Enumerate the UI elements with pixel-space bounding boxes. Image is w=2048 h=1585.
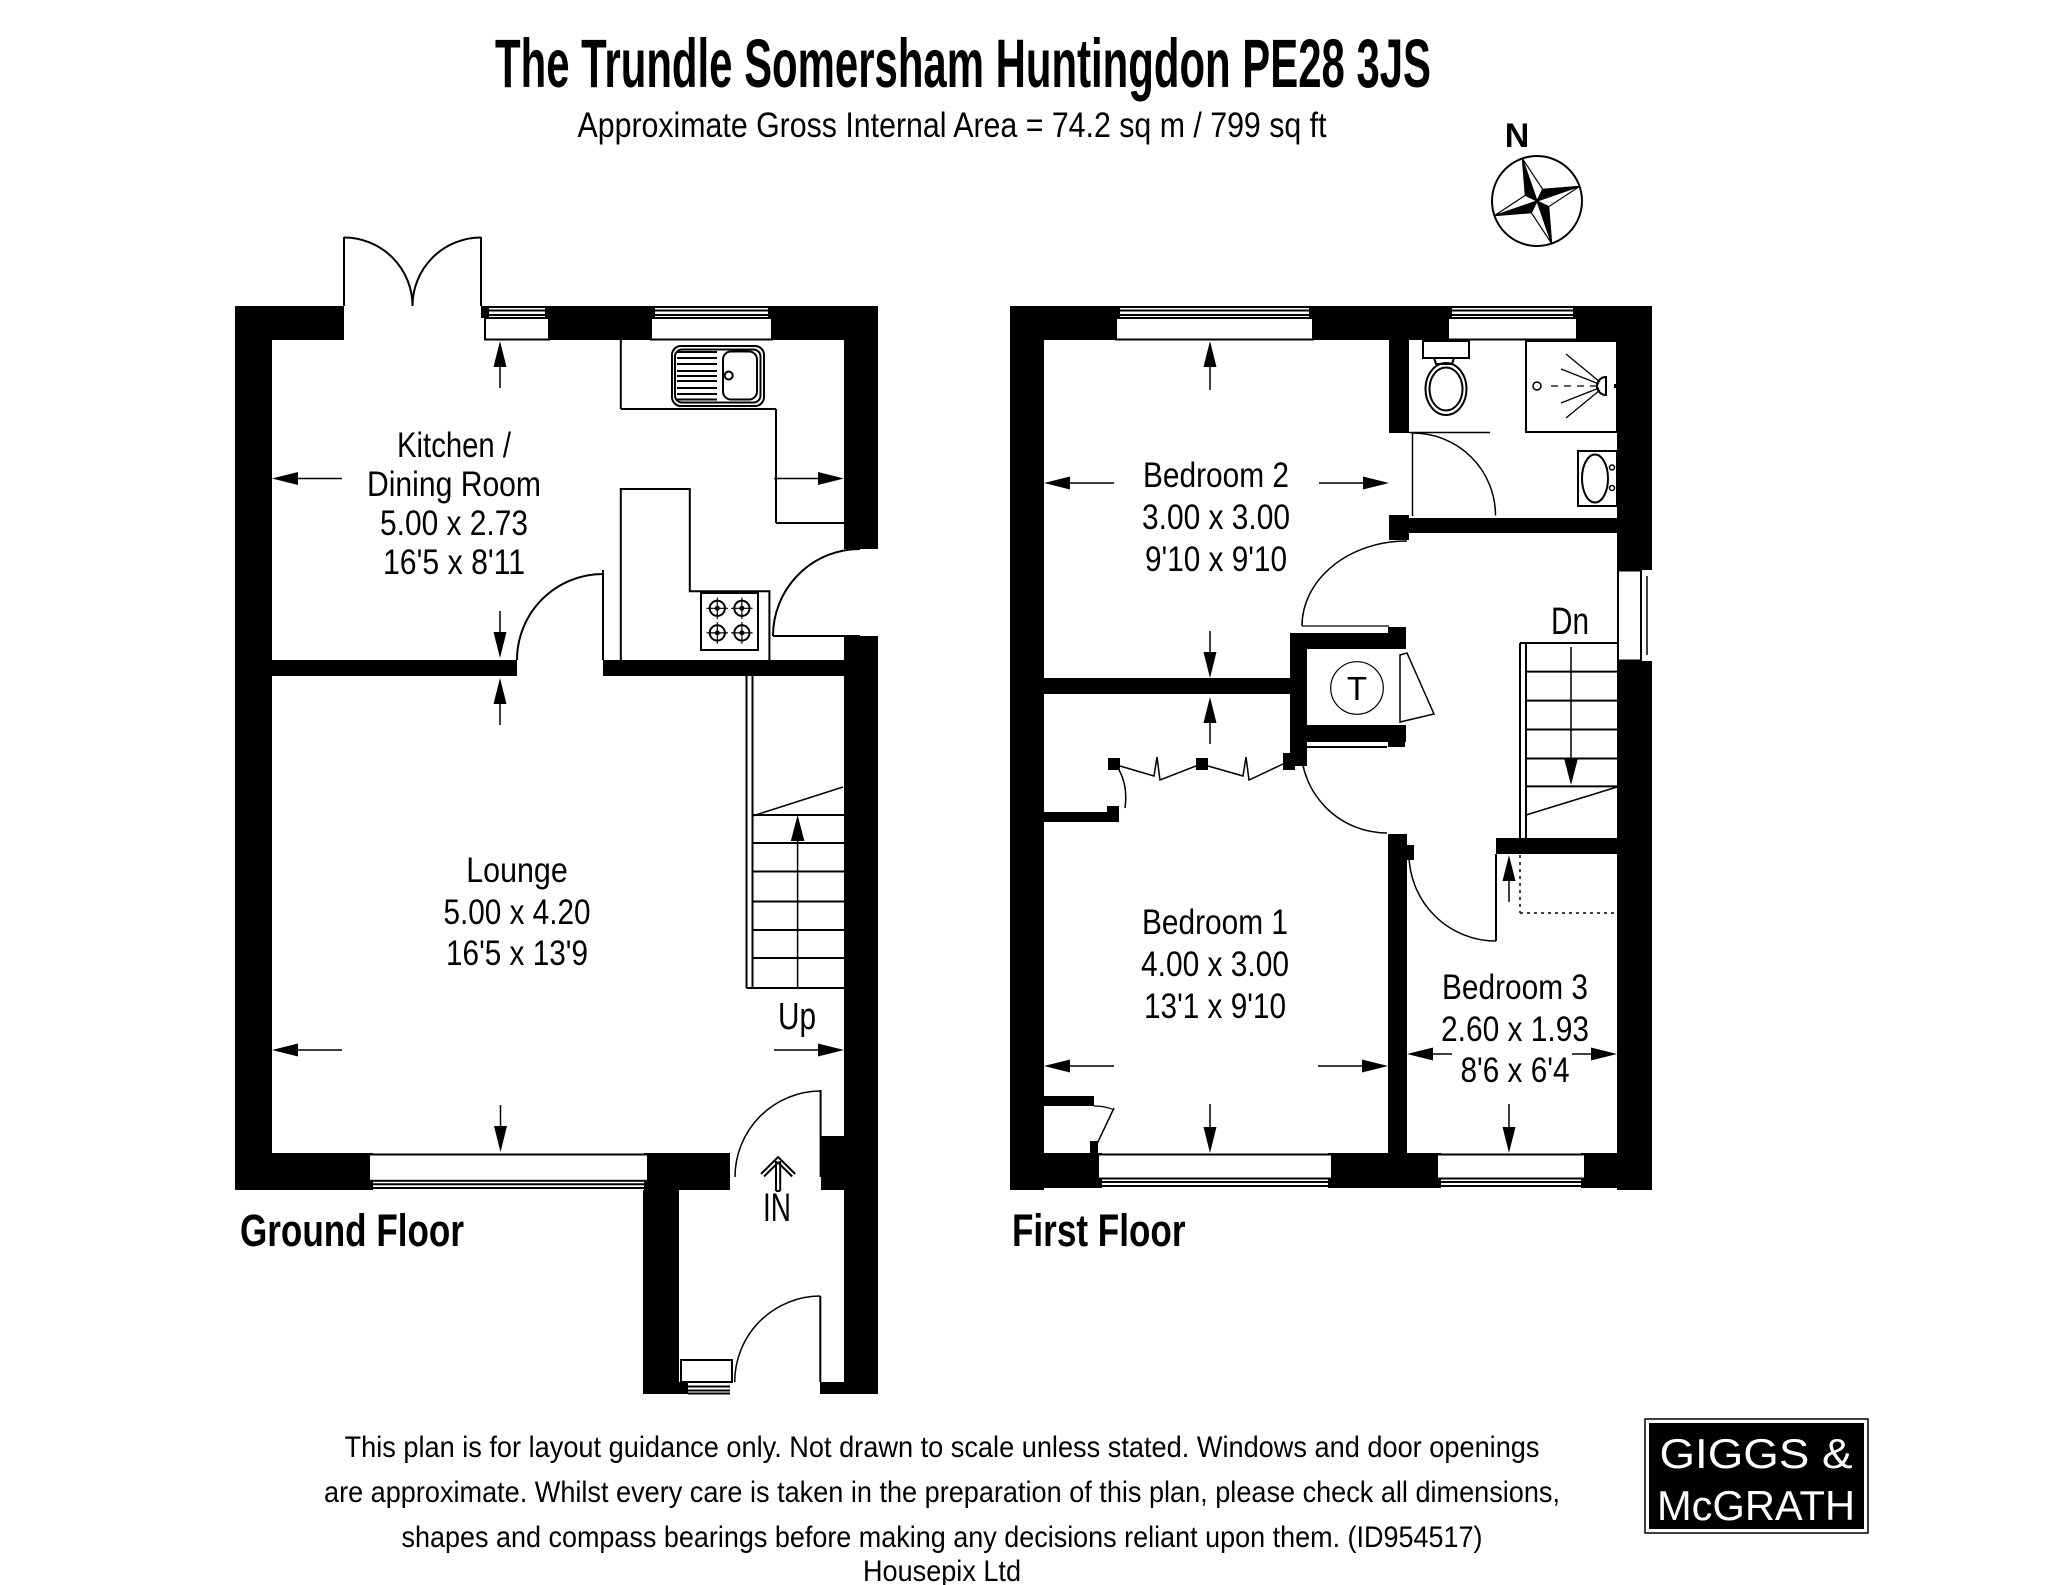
svg-text:N: N: [1505, 117, 1530, 155]
svg-text:are approximate. Whilst every: are approximate. Whilst every care is ta…: [324, 1476, 1560, 1509]
svg-text:GIGGS &: GIGGS &: [1660, 1430, 1853, 1477]
svg-text:13'1 x 9'10: 13'1 x 9'10: [1144, 986, 1286, 1026]
svg-text:5.00 x 2.73: 5.00 x 2.73: [380, 503, 528, 543]
svg-text:Bedroom 2: Bedroom 2: [1143, 455, 1289, 495]
svg-text:McGRATH: McGRATH: [1657, 1482, 1855, 1529]
svg-text:4.00 x 3.00: 4.00 x 3.00: [1141, 944, 1289, 984]
svg-text:Dn: Dn: [1551, 601, 1589, 643]
svg-text:shapes and compass bearings be: shapes and compass bearings before makin…: [402, 1521, 1483, 1554]
svg-text:8'6 x 6'4: 8'6 x 6'4: [1461, 1050, 1570, 1090]
svg-text:Dining Room: Dining Room: [367, 464, 541, 504]
svg-text:2.60 x 1.93: 2.60 x 1.93: [1441, 1009, 1589, 1049]
svg-text:The Trundle Somersham Huntingd: The Trundle Somersham Huntingdon PE28 3J…: [495, 25, 1431, 102]
svg-text:16'5 x 8'11: 16'5 x 8'11: [383, 542, 525, 582]
svg-text:Housepix Ltd: Housepix Ltd: [863, 1555, 1021, 1585]
svg-text:First Floor: First Floor: [1012, 1205, 1186, 1256]
svg-text:5.00 x 4.20: 5.00 x 4.20: [444, 892, 591, 932]
svg-text:Bedroom 1: Bedroom 1: [1142, 902, 1288, 942]
svg-text:16'5 x 13'9: 16'5 x 13'9: [446, 933, 588, 973]
svg-text:Approximate Gross Internal Are: Approximate Gross Internal Area = 74.2 s…: [578, 106, 1327, 145]
svg-text:9'10 x 9'10: 9'10 x 9'10: [1145, 539, 1287, 579]
svg-text:3.00 x 3.00: 3.00 x 3.00: [1142, 497, 1290, 537]
svg-text:Lounge: Lounge: [466, 850, 568, 890]
svg-text:Ground Floor: Ground Floor: [240, 1205, 464, 1256]
svg-text:IN: IN: [763, 1186, 791, 1230]
svg-text:This plan is for layout guidan: This plan is for layout guidance only. N…: [345, 1431, 1540, 1464]
svg-text:Up: Up: [778, 996, 816, 1038]
svg-text:Kitchen /: Kitchen /: [397, 425, 511, 465]
svg-text:Bedroom 3: Bedroom 3: [1442, 967, 1588, 1007]
svg-text:T: T: [1347, 670, 1367, 707]
